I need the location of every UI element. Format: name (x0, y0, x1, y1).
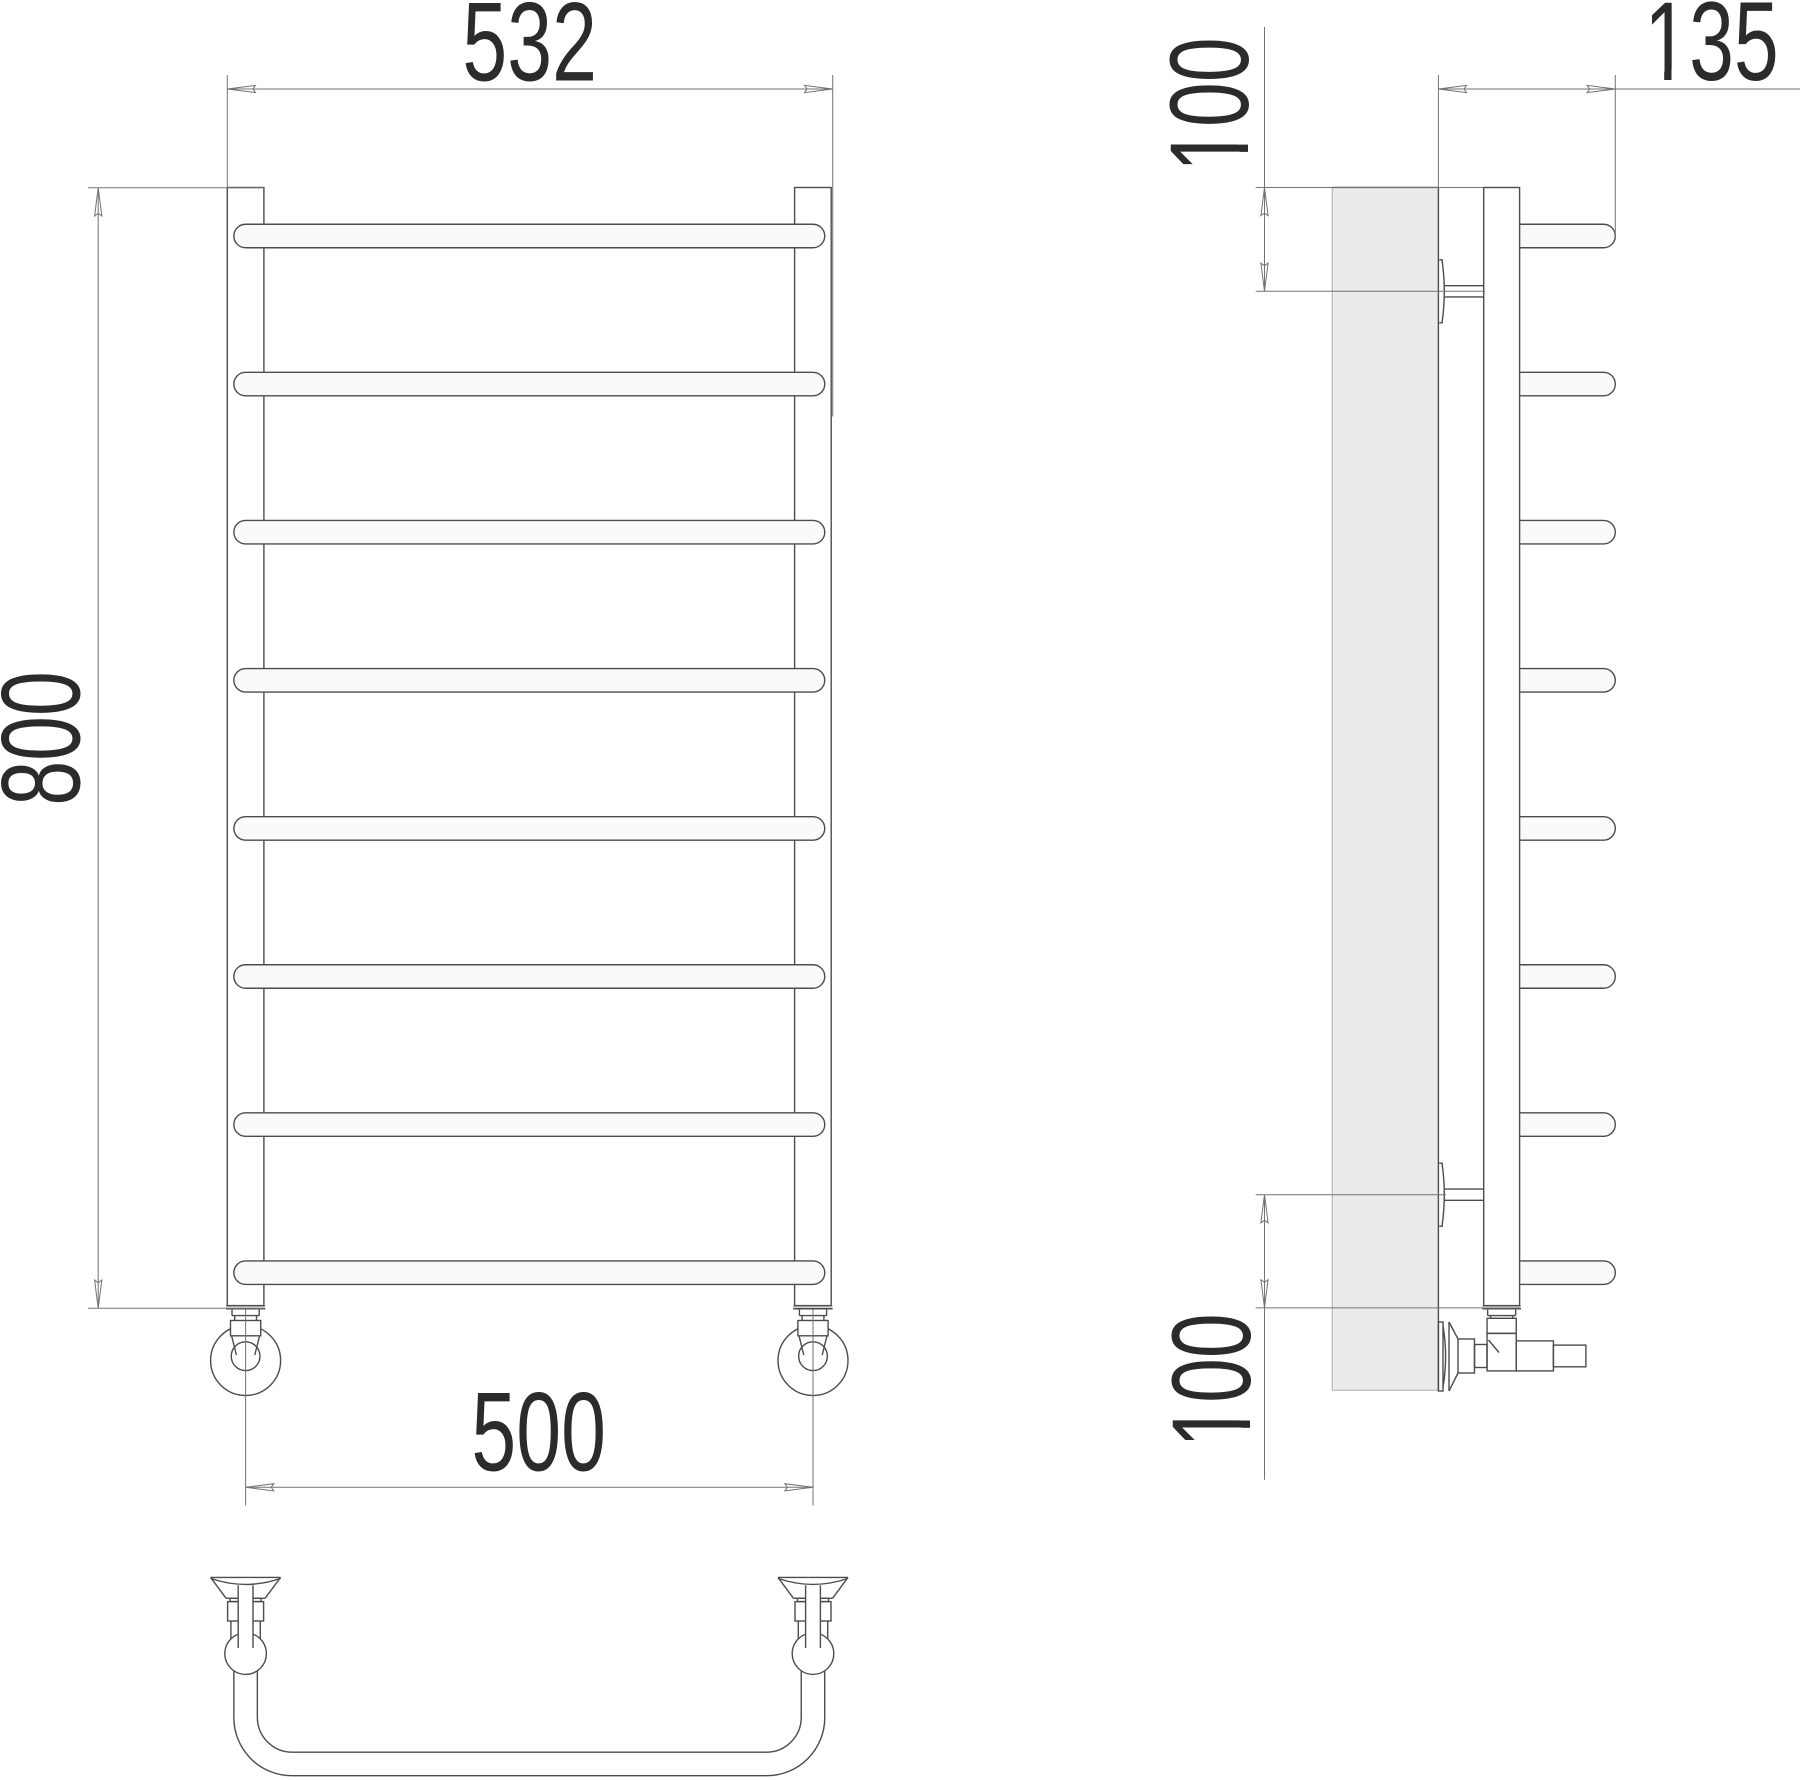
svg-text:135: 135 (1644, 0, 1779, 104)
svg-text:532: 532 (462, 0, 597, 105)
svg-text:100: 100 (1147, 37, 1272, 172)
svg-text:100: 100 (1149, 1313, 1274, 1448)
svg-text:500: 500 (471, 1370, 606, 1495)
svg-text:800: 800 (0, 671, 104, 806)
